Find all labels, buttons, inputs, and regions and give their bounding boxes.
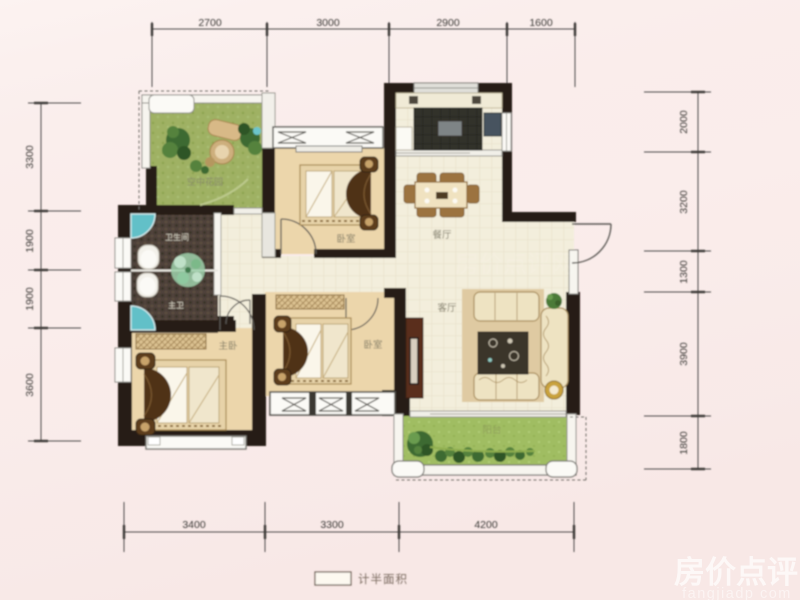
svg-text:2000: 2000: [678, 110, 690, 134]
svg-text:1800: 1800: [678, 431, 690, 455]
svg-text:空中花园: 空中花园: [187, 176, 223, 187]
svg-text:卧室: 卧室: [363, 339, 382, 351]
svg-text:客厅: 客厅: [437, 302, 457, 314]
svg-text:3300: 3300: [320, 519, 344, 531]
svg-text:3000: 3000: [316, 17, 340, 29]
svg-text:计半面积: 计半面积: [358, 572, 408, 586]
svg-text:4200: 4200: [474, 519, 498, 531]
svg-text:3400: 3400: [182, 519, 206, 531]
svg-text:1300: 1300: [678, 260, 690, 284]
svg-text:房价点评: 房价点评: [674, 555, 798, 590]
svg-text:阳台: 阳台: [482, 424, 501, 436]
svg-text:3600: 3600: [24, 373, 36, 397]
svg-text:3900: 3900: [678, 342, 690, 366]
svg-text:fangjiadp com: fangjiadp com: [682, 586, 792, 600]
svg-text:主卧: 主卧: [218, 340, 238, 352]
svg-text:2900: 2900: [436, 17, 460, 29]
svg-text:3200: 3200: [678, 190, 690, 214]
svg-text:主卫: 主卫: [168, 300, 184, 310]
svg-text:卫生间: 卫生间: [165, 232, 189, 242]
svg-text:1900: 1900: [24, 287, 36, 311]
svg-text:1600: 1600: [529, 17, 553, 29]
svg-text:卧室: 卧室: [336, 233, 355, 245]
svg-text:1900: 1900: [24, 229, 36, 253]
svg-text:2700: 2700: [198, 17, 222, 29]
svg-text:3300: 3300: [24, 145, 36, 169]
svg-text:房价点评网: 房价点评网: [455, 251, 575, 278]
svg-text:餐厅: 餐厅: [432, 229, 452, 241]
